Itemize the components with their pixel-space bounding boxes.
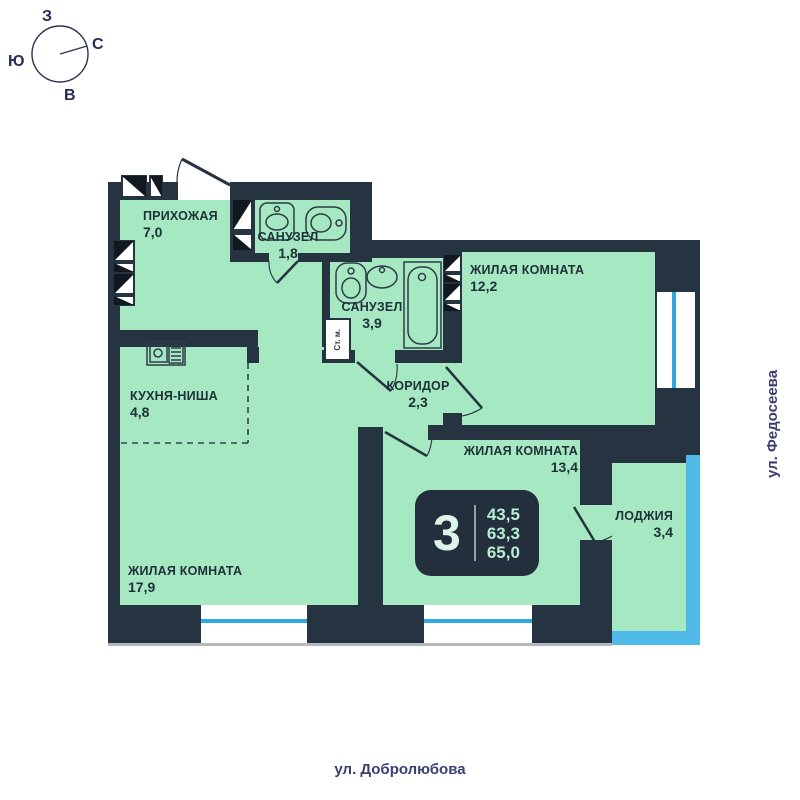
rooms-count: 3 [433, 508, 461, 558]
compass-north-label: С [92, 36, 104, 54]
loggia-door-gap [580, 505, 612, 540]
apartment-info-badge: 3 43,5 63,3 65,0 [415, 490, 539, 576]
window-bottom-right [424, 605, 532, 643]
room-label-living-17: ЖИЛАЯ КОМНАТА 17,9 [128, 564, 242, 595]
entrance-door [177, 159, 230, 200]
washing-machine-box: Ст. м. [324, 318, 351, 361]
room-label-corridor: КОРИДОР 2,3 [377, 379, 459, 410]
compass-south-label: Ю [8, 53, 25, 71]
room-label-kitchen-niche: КУХНЯ-НИША 4,8 [130, 389, 218, 420]
street-label-fedoseeva: ул. Федосеева [764, 318, 781, 478]
compass [32, 26, 88, 82]
room-label-living-13: ЖИЛАЯ КОМНАТА 13,4 [464, 444, 578, 475]
room-label-living-12: ЖИЛАЯ КОМНАТА 12,2 [470, 263, 584, 294]
room-label-bathroom-small: САНУЗЕЛ 1,8 [250, 230, 326, 261]
compass-west-label: З [42, 8, 52, 26]
window-right [657, 292, 695, 388]
compass-east-label: В [64, 87, 76, 105]
floor-plan-page: .w{fill:#263340}.g{fill:#a6e8c1}.c{fill:… [0, 0, 800, 800]
area-usable: 63,3 [487, 524, 520, 543]
loggia-floor [612, 463, 686, 631]
facade-line [108, 643, 612, 646]
street-label-dobrolyubova: ул. Добролюбова [295, 761, 505, 778]
area-living: 43,5 [487, 505, 520, 524]
area-total: 65,0 [487, 543, 520, 562]
window-bottom-left [201, 605, 307, 643]
badge-separator [474, 505, 476, 561]
room-label-hallway: ПРИХОЖАЯ 7,0 [143, 209, 218, 240]
washing-machine-label: Ст. м. [333, 329, 342, 351]
room-label-loggia: ЛОДЖИЯ 3,4 [615, 509, 673, 540]
badge-areas: 43,5 63,3 65,0 [487, 505, 520, 562]
